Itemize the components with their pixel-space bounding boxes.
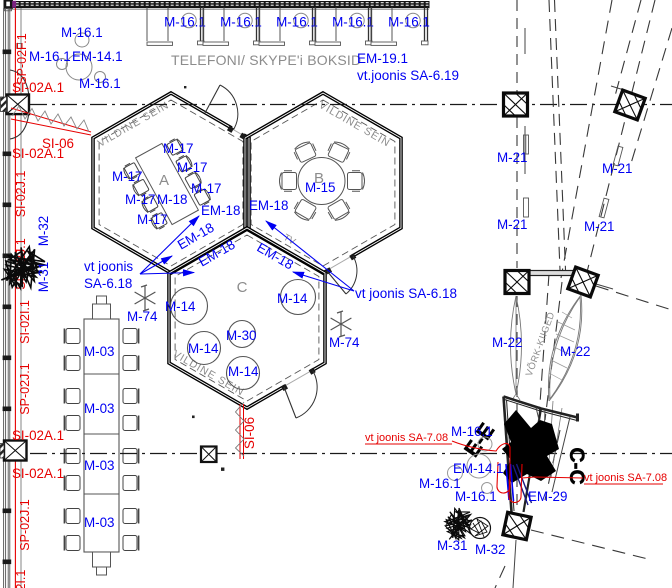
- svg-text:M-21: M-21: [602, 161, 633, 176]
- svg-text:C: C: [237, 279, 248, 296]
- svg-text:M-22: M-22: [492, 335, 523, 350]
- svg-text:M-03: M-03: [84, 515, 115, 530]
- svg-text:M-17: M-17: [191, 181, 222, 196]
- svg-text:M-74: M-74: [127, 309, 158, 324]
- svg-text:M-16.1: M-16.1: [451, 424, 493, 439]
- svg-text:M-16.1: M-16.1: [29, 49, 71, 64]
- svg-text:M-16.1: M-16.1: [61, 25, 103, 40]
- svg-text:vt.joonis SA-6.19: vt.joonis SA-6.19: [357, 68, 459, 83]
- svg-text:M-14: M-14: [228, 364, 259, 379]
- svg-text:M-03: M-03: [84, 458, 115, 473]
- svg-text:M-32: M-32: [475, 542, 506, 557]
- svg-text:M-17: M-17: [125, 192, 156, 207]
- svg-text:M-16.1: M-16.1: [79, 76, 121, 91]
- svg-text:M-17: M-17: [112, 169, 143, 184]
- svg-text:vt joonis SA-7.08: vt joonis SA-7.08: [365, 432, 448, 444]
- svg-text:M-14: M-14: [277, 291, 308, 306]
- svg-text:M-16.1: M-16.1: [164, 15, 206, 30]
- svg-text:M-31: M-31: [437, 538, 468, 553]
- svg-text:M-21: M-21: [584, 219, 615, 234]
- svg-text:M-15: M-15: [305, 180, 336, 195]
- svg-text:TELEFONI/ SKYPE'i BOKSID: TELEFONI/ SKYPE'i BOKSID: [171, 52, 361, 68]
- svg-text:M-17: M-17: [177, 160, 208, 175]
- svg-text:M-16.1: M-16.1: [388, 15, 430, 30]
- svg-text:vt joonis: vt joonis: [84, 259, 133, 274]
- svg-text:M-18: M-18: [157, 192, 188, 207]
- svg-text:M-03: M-03: [84, 344, 115, 359]
- svg-text:SI-02A.1: SI-02A.1: [12, 466, 64, 481]
- svg-text:SP-02F.1: SP-02F.1: [15, 33, 29, 84]
- svg-text:SI-06: SI-06: [242, 417, 257, 449]
- svg-text:SI-02I.1: SI-02I.1: [18, 300, 32, 344]
- svg-text:M-21: M-21: [497, 150, 528, 165]
- svg-text:SA-6.18: SA-6.18: [84, 276, 132, 291]
- svg-text:M-16.1: M-16.1: [455, 489, 497, 504]
- svg-text:vt joonis SA-7.08: vt joonis SA-7.08: [584, 472, 667, 484]
- svg-text:EM-29: EM-29: [528, 489, 567, 504]
- svg-text:M-32: M-32: [36, 216, 51, 247]
- svg-text:EM-18: EM-18: [201, 203, 240, 218]
- svg-text:M-14: M-14: [188, 341, 219, 356]
- svg-text:EM-14.1: EM-14.1: [72, 49, 123, 64]
- svg-text:SP-02I.1: SP-02I.1: [14, 570, 28, 588]
- svg-text:SI-02A.1: SI-02A.1: [12, 428, 64, 443]
- svg-text:EM-19.1: EM-19.1: [357, 51, 408, 66]
- svg-text:M-03: M-03: [84, 401, 115, 416]
- svg-text:SP-02J.1: SP-02J.1: [18, 363, 32, 414]
- svg-text:M-30: M-30: [226, 328, 257, 343]
- svg-text:M-14: M-14: [165, 299, 196, 314]
- svg-text:M-17: M-17: [137, 212, 168, 227]
- svg-text:M-22: M-22: [560, 344, 591, 359]
- svg-text:M-16.1: M-16.1: [276, 15, 318, 30]
- svg-text:M-74: M-74: [329, 335, 360, 350]
- svg-text:M-17: M-17: [163, 141, 194, 156]
- svg-text:M-16.1: M-16.1: [332, 15, 374, 30]
- svg-text:vt joonis SA-6.18: vt joonis SA-6.18: [355, 286, 457, 301]
- svg-text:EM-14.1: EM-14.1: [453, 461, 504, 476]
- svg-text:M-31: M-31: [36, 262, 51, 293]
- svg-text:SI-06: SI-06: [42, 136, 74, 151]
- svg-text:SI-02J.1: SI-02J.1: [14, 171, 28, 218]
- svg-text:M-21: M-21: [497, 217, 528, 232]
- svg-text:SP-02J.1: SP-02J.1: [18, 499, 32, 550]
- svg-text:EM-18: EM-18: [249, 198, 288, 213]
- svg-text:M-16.1: M-16.1: [220, 15, 262, 30]
- svg-text:A: A: [159, 172, 169, 189]
